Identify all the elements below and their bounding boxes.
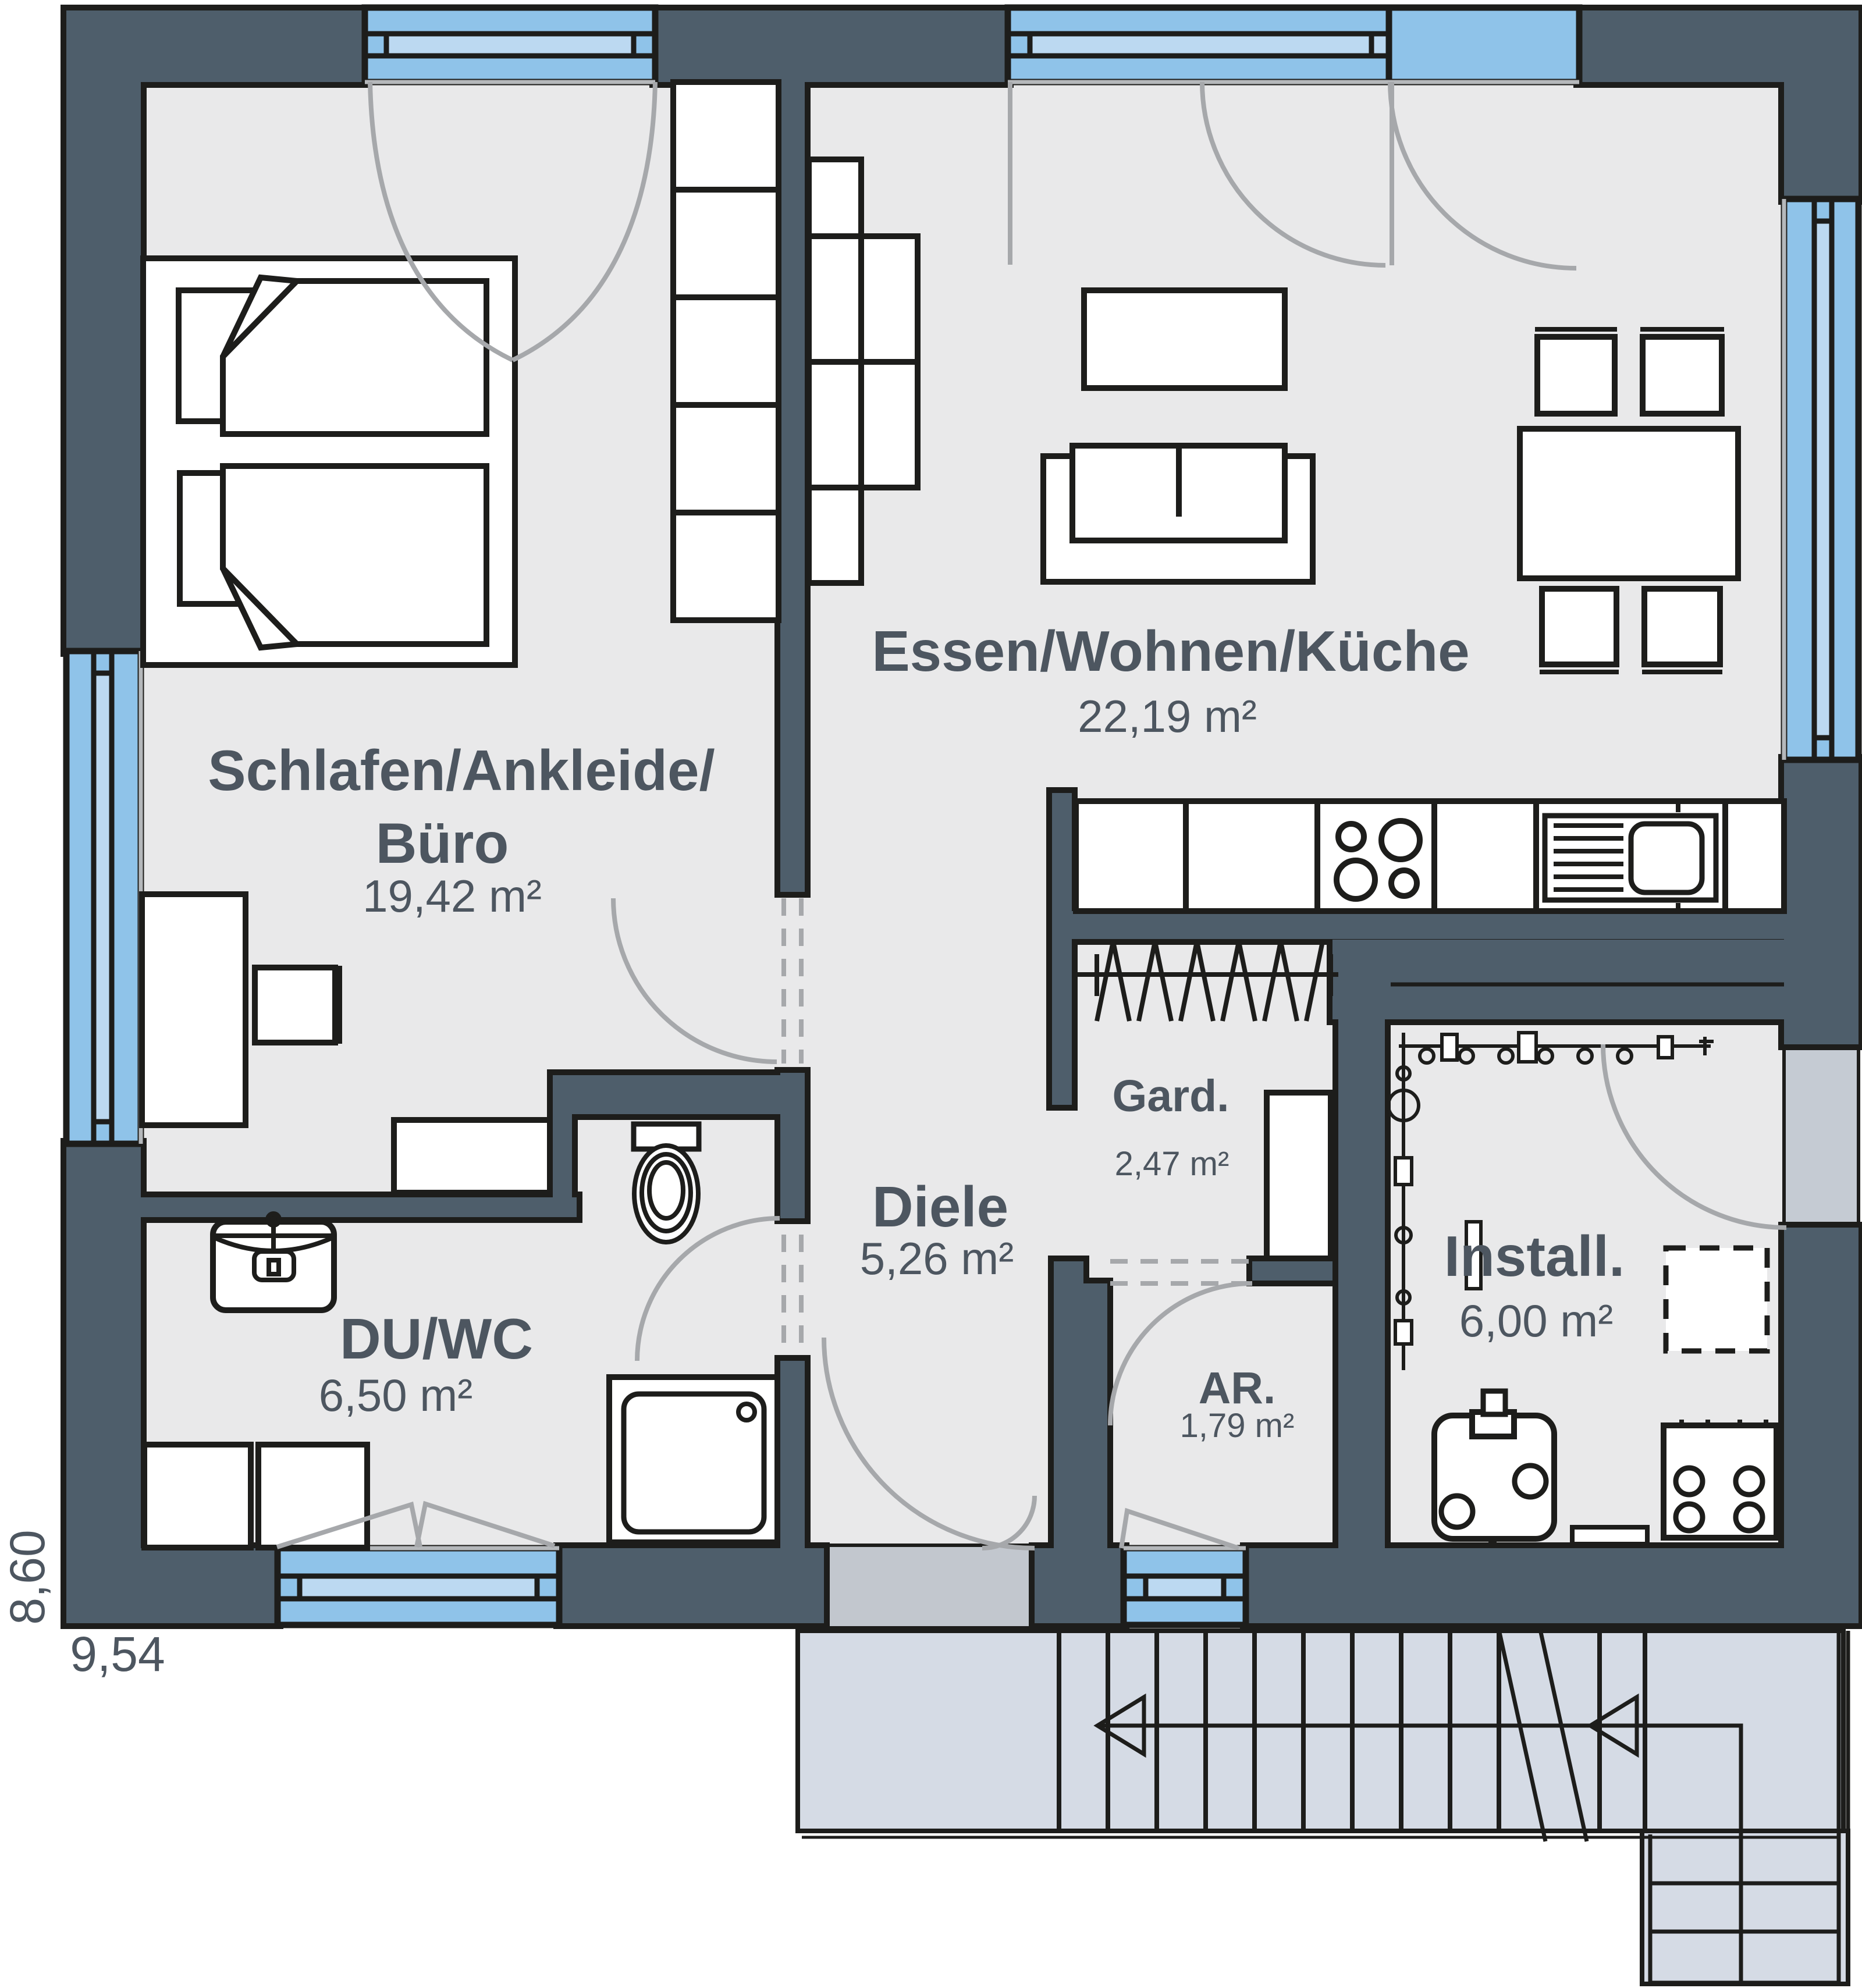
svg-text:Büro: Büro: [376, 811, 509, 875]
svg-text:2,47 m²: 2,47 m²: [1115, 1145, 1230, 1183]
svg-text:8,60: 8,60: [0, 1530, 55, 1625]
svg-text:1,79 m²: 1,79 m²: [1180, 1407, 1295, 1445]
svg-text:19,42 m²: 19,42 m²: [363, 870, 542, 922]
svg-text:Install.: Install.: [1444, 1224, 1625, 1288]
svg-text:Essen/Wohnen/Küche: Essen/Wohnen/Küche: [872, 619, 1469, 683]
svg-text:Diele: Diele: [872, 1175, 1008, 1239]
svg-text:Schlafen/Ankleide/: Schlafen/Ankleide/: [208, 738, 715, 802]
svg-text:6,00 m²: 6,00 m²: [1459, 1295, 1613, 1346]
svg-text:AR.: AR.: [1199, 1363, 1276, 1413]
svg-text:9,54: 9,54: [70, 1627, 165, 1681]
svg-text:DU/WC: DU/WC: [340, 1307, 533, 1371]
svg-text:22,19 m²: 22,19 m²: [1078, 691, 1257, 742]
svg-text:5,26 m²: 5,26 m²: [860, 1233, 1014, 1284]
svg-text:Gard.: Gard.: [1112, 1071, 1229, 1121]
svg-text:6,50 m²: 6,50 m²: [319, 1370, 472, 1421]
